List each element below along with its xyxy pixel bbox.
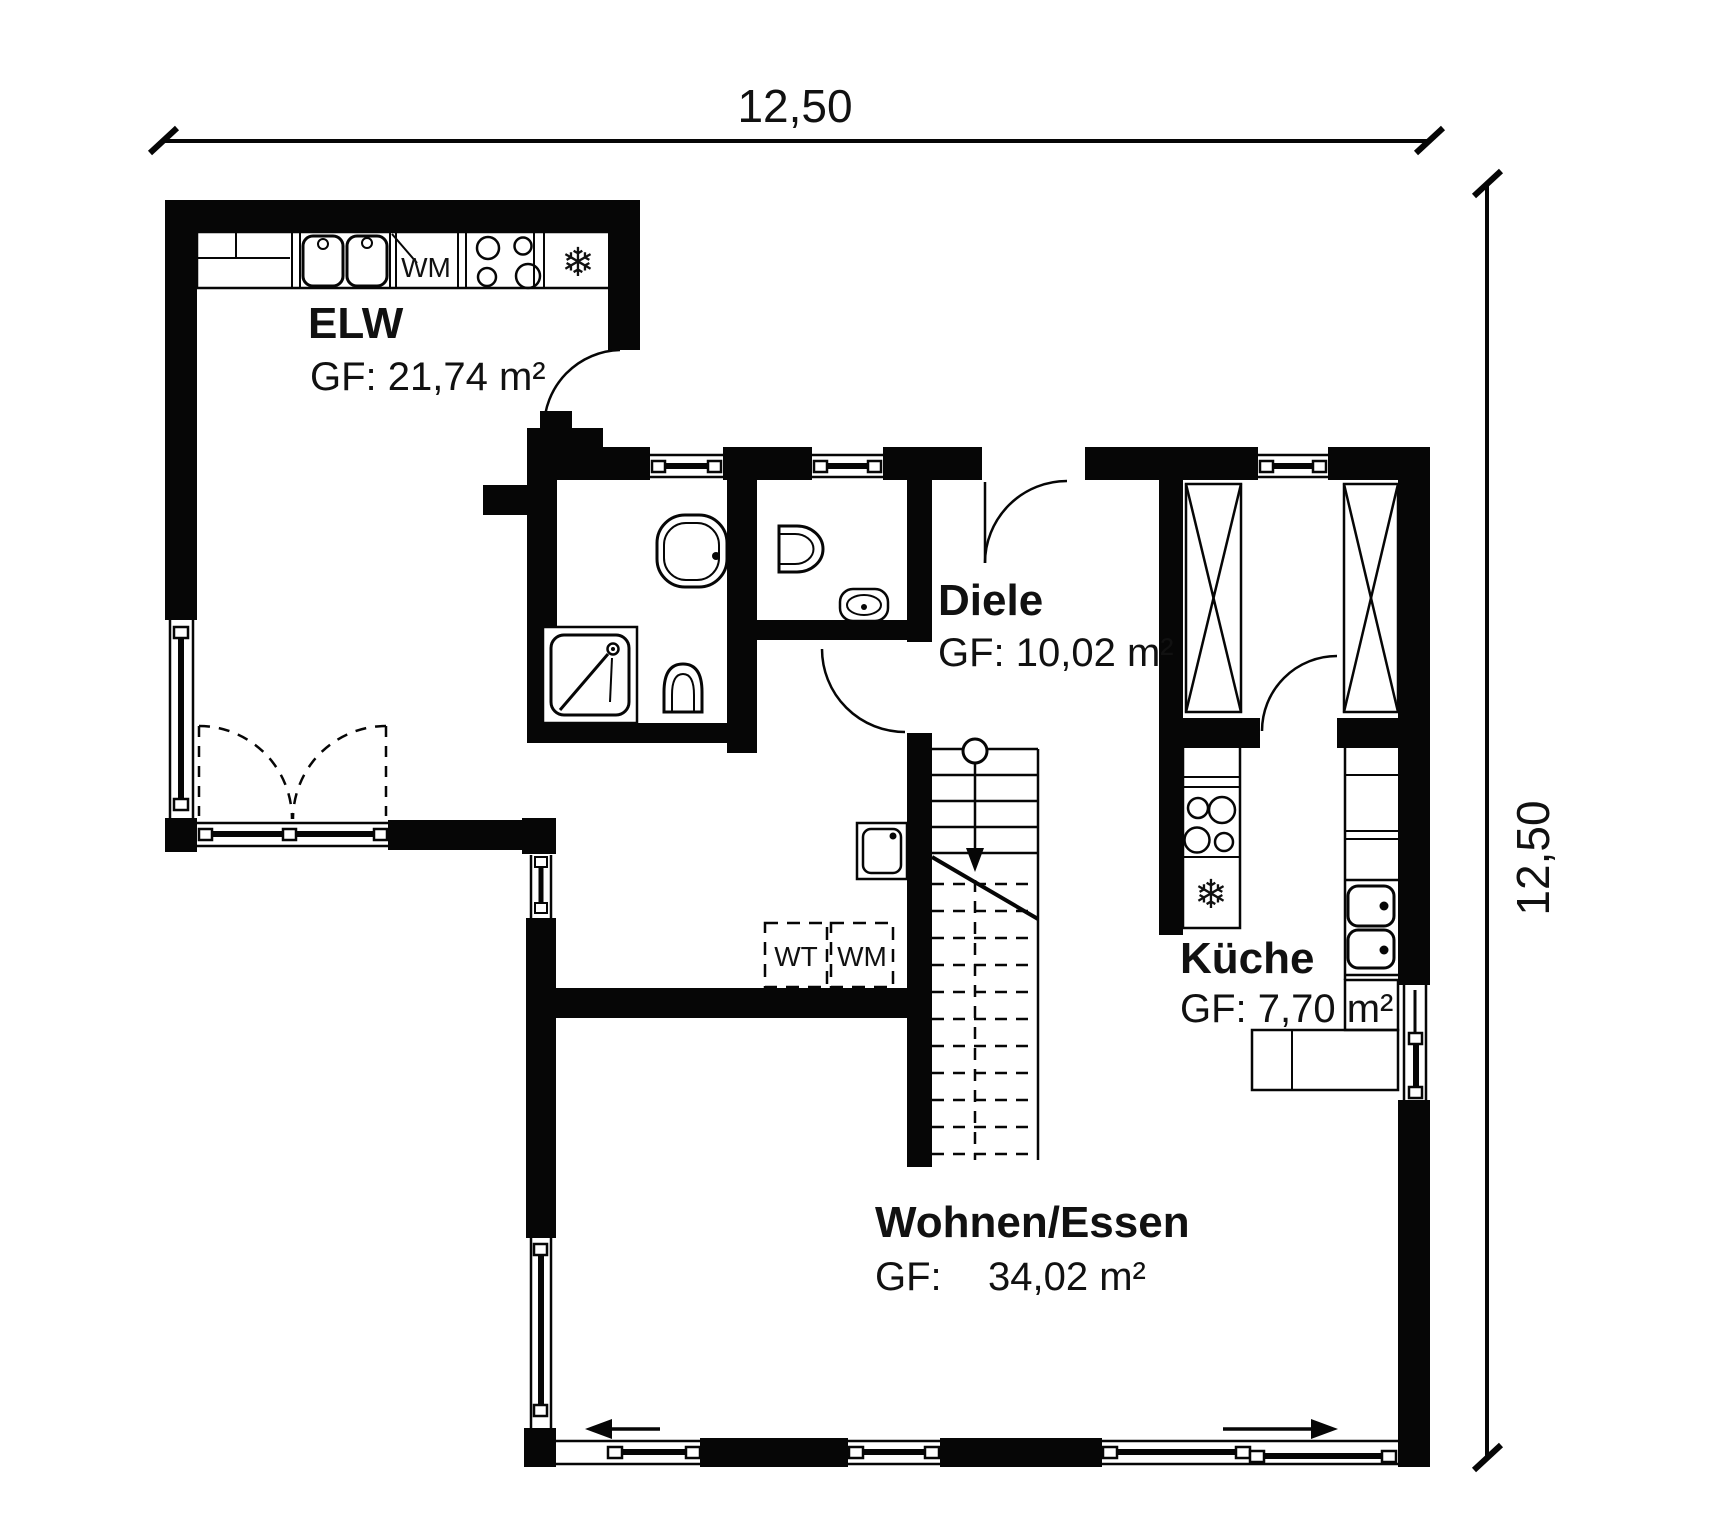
closet-x-right-icon xyxy=(1344,484,1398,712)
window-south-3-icon xyxy=(1102,1441,1398,1464)
dimension-top: 12,50 xyxy=(150,80,1443,153)
french-door-swing-icon xyxy=(199,726,386,819)
closets xyxy=(1186,484,1398,712)
window-nook-icon xyxy=(1258,455,1328,477)
shower-icon xyxy=(543,627,637,723)
floor-plan: 12,50 12,50 xyxy=(0,0,1720,1517)
washing-machine-elw-icon: WM xyxy=(392,234,451,283)
floor-plan-page: 12,50 12,50 xyxy=(0,0,1720,1517)
stair-break-line xyxy=(932,857,1038,919)
washing-machine-elw-label: WM xyxy=(401,252,451,283)
stove-elw-icon xyxy=(477,237,540,288)
dimension-right: 12,50 xyxy=(1474,171,1559,1470)
door-diele-icon xyxy=(985,481,1067,563)
dryer-label: WT xyxy=(774,941,818,972)
stove-kueche-icon xyxy=(1185,797,1236,853)
sliding-door-arrows xyxy=(585,1419,1338,1439)
window-west-tall-icon xyxy=(531,1238,551,1428)
stair-direction-arrow-icon xyxy=(966,848,984,872)
door-nook-icon xyxy=(1262,656,1337,731)
arrow-left-icon xyxy=(585,1419,660,1439)
window-east-icon xyxy=(1404,985,1426,1100)
dimension-right-label: 12,50 xyxy=(1507,800,1559,915)
window-bath-1-icon xyxy=(650,455,723,477)
kitchen-fittings: ❄ xyxy=(1183,737,1398,1090)
washing-machine-hall-label: WM xyxy=(837,941,887,972)
fridge-kueche-snowflake-icon: ❄ xyxy=(1194,872,1228,918)
bath-fixtures xyxy=(543,515,907,879)
room-area-wohnen-value: 34,02 m² xyxy=(988,1255,1146,1299)
room-label-kueche: Küche xyxy=(1180,934,1314,983)
window-south-2-icon xyxy=(848,1441,940,1464)
dimension-top-label: 12,50 xyxy=(737,80,852,132)
elw-kitchenette: WM ❄ xyxy=(197,232,610,288)
window-west-small-icon xyxy=(531,855,551,918)
laundry-units: WT WM xyxy=(765,923,893,987)
washbasin-bad-icon xyxy=(657,515,727,587)
toilet-bad-icon xyxy=(664,664,702,712)
room-area-elw: GF: 21,74 m² xyxy=(310,355,546,399)
door-hall-icon xyxy=(822,649,905,732)
room-label-diele: Diele xyxy=(938,576,1043,625)
window-elw-west-icon xyxy=(170,620,193,818)
window-south-1-icon xyxy=(556,1441,700,1464)
washbasin-hall-icon xyxy=(857,823,907,879)
room-area-kueche: GF: 7,70 m² xyxy=(1180,987,1393,1031)
closet-x-left-icon xyxy=(1186,484,1241,712)
arrow-right-icon xyxy=(1223,1419,1338,1439)
window-bath-2-icon xyxy=(812,455,883,477)
room-label-wohnen: Wohnen/Essen xyxy=(875,1198,1190,1247)
fridge-elw-snowflake-icon: ❄ xyxy=(561,240,595,286)
room-area-diele: GF: 10,02 m² xyxy=(938,631,1174,675)
room-label-elw: ELW xyxy=(308,299,404,348)
kueche-sink-icon xyxy=(1348,886,1394,968)
french-door-sill-icon xyxy=(197,823,388,846)
toilet-wc-icon xyxy=(779,526,823,572)
stair-start-post-icon xyxy=(963,739,987,763)
stairs xyxy=(932,739,1038,1160)
washbasin-wc-icon xyxy=(840,589,888,621)
room-area-wohnen-prefix: GF: xyxy=(875,1255,942,1299)
double-sink-icon xyxy=(303,236,387,286)
